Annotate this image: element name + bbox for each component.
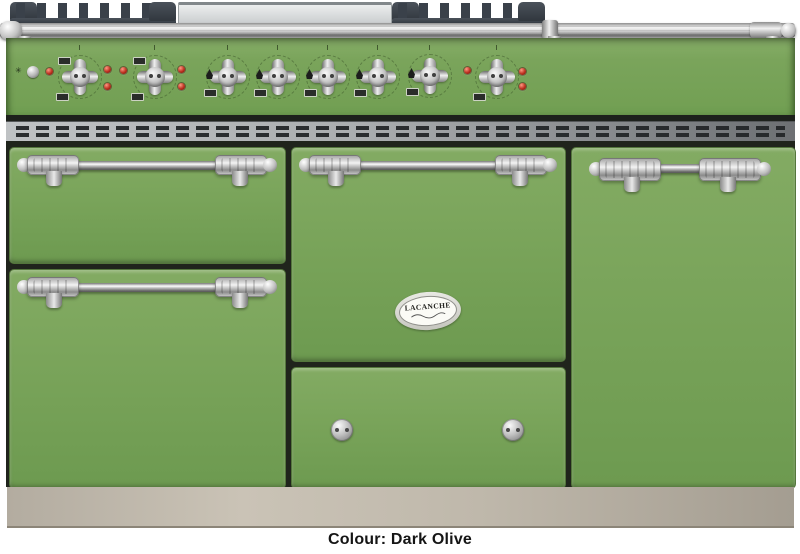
- indicator-light: [104, 83, 111, 90]
- door-handle-right: [590, 156, 770, 192]
- panel-label-plate: [304, 89, 317, 97]
- control-panel: [6, 38, 795, 117]
- panel-label-plate: [58, 57, 71, 65]
- vent-strip: [6, 121, 795, 143]
- knob-tick: [377, 45, 378, 50]
- knob-tick: [79, 45, 80, 50]
- lacanche-badge: LACANCHE: [394, 290, 462, 333]
- colour-caption: Colour: Dark Olive: [0, 531, 800, 549]
- panel-label-plate: [473, 93, 486, 101]
- knob-tick: [227, 45, 228, 50]
- knob-tick: [327, 45, 328, 50]
- door-handle-left: [18, 274, 276, 310]
- igniter-button: [27, 66, 39, 78]
- drawer-pull-knob-right: [502, 419, 524, 441]
- knob-tick: [429, 45, 430, 50]
- indicator-light: [120, 67, 127, 74]
- indicator-light: [178, 83, 185, 90]
- towel-rail: [0, 23, 795, 38]
- drawer-pull-knob-left: [331, 419, 353, 441]
- towel-rail-finial-right: [781, 23, 796, 38]
- panel-label-plate: [406, 88, 419, 96]
- knob-tick: [277, 45, 278, 50]
- panel-label-plate: [254, 89, 267, 97]
- indicator-light: [519, 68, 526, 75]
- vent-slots-row: [16, 126, 785, 130]
- panel-label-plate: [133, 57, 146, 65]
- panel-label-plate: [204, 89, 217, 97]
- panel-label-plate: [354, 89, 367, 97]
- oven-door-right: [571, 147, 796, 489]
- panel-label-plate: [56, 93, 69, 101]
- knob-tick: [496, 45, 497, 50]
- knob-tick: [154, 45, 155, 50]
- star-icon: ✳: [15, 67, 22, 75]
- vent-slots-row: [16, 133, 785, 137]
- product-photo-lacanche-range: ✳: [0, 0, 800, 554]
- door-handle-middle: [300, 152, 556, 188]
- panel-label-plate: [131, 93, 144, 101]
- plinth: [7, 487, 794, 528]
- indicator-light: [464, 67, 471, 74]
- right-oven-knob: [479, 59, 515, 95]
- indicator-light: [46, 68, 53, 75]
- indicator-light: [178, 66, 185, 73]
- indicator-light: [104, 66, 111, 73]
- badge-script-flourish: [408, 310, 448, 321]
- drawer-handle-top-left: [18, 152, 276, 188]
- indicator-light: [519, 83, 526, 90]
